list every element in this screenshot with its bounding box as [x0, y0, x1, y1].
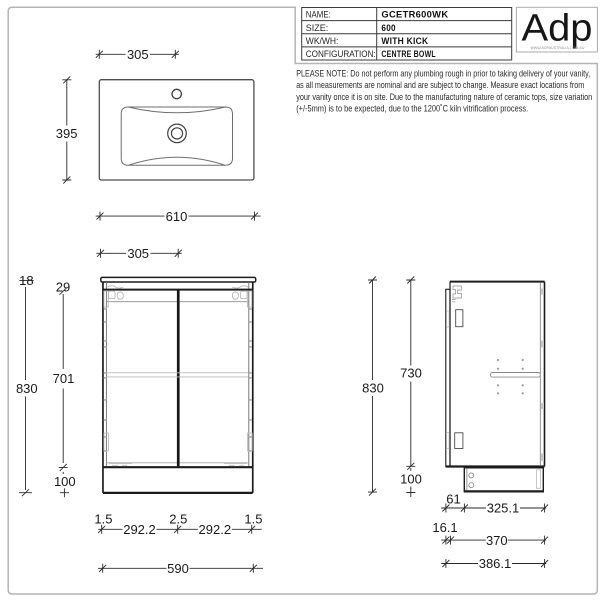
svg-text:610: 610	[166, 209, 188, 224]
svg-text:292.2: 292.2	[123, 522, 156, 537]
svg-text:305: 305	[127, 47, 149, 62]
svg-text:29: 29	[56, 280, 70, 295]
svg-text:PLEASE NOTE: Do not perform an: PLEASE NOTE: Do not perform any plumbing…	[296, 69, 590, 80]
svg-text:WITH KICK: WITH KICK	[381, 36, 428, 46]
svg-text:as all measurements are nomina: as all measurements are nominal and are …	[296, 80, 584, 91]
svg-text:CENTRE BOWL: CENTRE BOWL	[381, 49, 436, 59]
svg-text:Adp: Adp	[522, 8, 593, 50]
svg-text:18: 18	[19, 273, 33, 288]
svg-text:1.5: 1.5	[94, 512, 112, 527]
svg-text:395: 395	[56, 126, 78, 141]
svg-text:1.5: 1.5	[244, 512, 262, 527]
svg-text:GCETR600WK: GCETR600WK	[381, 10, 448, 20]
svg-text:(+/-5mm) is to be expected, du: (+/-5mm) is to be expected, due to the 1…	[296, 104, 528, 115]
svg-text:292.2: 292.2	[199, 522, 232, 537]
svg-text:61: 61	[446, 491, 460, 506]
svg-text:830: 830	[16, 381, 38, 396]
svg-text:SIZE:: SIZE:	[306, 23, 329, 33]
svg-text:370: 370	[486, 533, 508, 548]
svg-text:305: 305	[127, 246, 149, 261]
svg-text:325.1: 325.1	[487, 501, 520, 516]
svg-text:16.1: 16.1	[432, 520, 457, 535]
svg-text:CONFIGURATION:: CONFIGURATION:	[306, 49, 376, 59]
svg-text:701: 701	[53, 371, 75, 386]
svg-text:386.1: 386.1	[479, 556, 512, 571]
svg-text:600: 600	[381, 23, 396, 33]
svg-text:WK/WH:: WK/WH:	[306, 36, 339, 46]
svg-text:NAME:: NAME:	[306, 10, 331, 20]
svg-text:WWW.ADPAUSTRALIA.COM.AU: WWW.ADPAUSTRALIA.COM.AU	[531, 46, 585, 50]
svg-text:100: 100	[400, 472, 422, 487]
svg-text:590: 590	[167, 561, 189, 576]
svg-text:2.5: 2.5	[169, 512, 187, 527]
svg-text:your vanity once it is on site: your vanity once it is on site. Due to t…	[296, 92, 592, 103]
svg-text:730: 730	[400, 366, 422, 381]
svg-text:100: 100	[54, 474, 76, 489]
svg-text:830: 830	[362, 380, 384, 395]
